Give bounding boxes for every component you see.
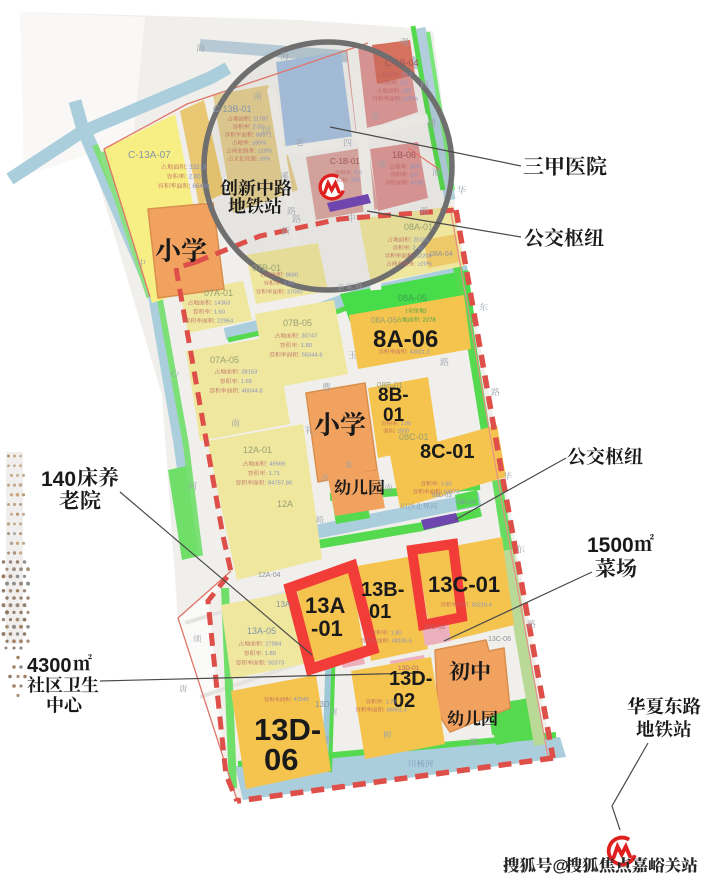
- svg-text:C-13B-01: C-13B-01: [213, 104, 252, 114]
- svg-text:1.71: 1.71: [269, 471, 280, 477]
- svg-text:08A-06: 08A-06: [371, 316, 397, 325]
- svg-text:11787: 11787: [253, 116, 268, 122]
- svg-text:48105.6: 48105.6: [392, 638, 412, 644]
- svg-text:01: 01: [369, 601, 391, 623]
- svg-text:≥5%: ≥5%: [259, 156, 270, 162]
- svg-text:13C-01: 13C-01: [428, 572, 500, 597]
- svg-text:13B-: 13B-: [361, 579, 404, 601]
- svg-text:4.0: 4.0: [354, 170, 362, 176]
- svg-text:08B-01: 08B-01: [377, 381, 403, 390]
- svg-text:50373: 50373: [268, 661, 284, 667]
- svg-text:30747: 30747: [301, 334, 317, 340]
- svg-text::: :: [397, 421, 399, 427]
- svg-text:2.00: 2.00: [189, 173, 202, 180]
- svg-text:13C-06: 13C-06: [488, 636, 511, 643]
- svg-text:1500: 1500: [587, 534, 634, 557]
- svg-text:13D: 13D: [315, 700, 330, 709]
- svg-text:≥10%: ≥10%: [258, 148, 272, 154]
- svg-text:13A-05: 13A-05: [247, 626, 276, 636]
- svg-text:1.80: 1.80: [391, 630, 402, 636]
- svg-text:1B-06: 1B-06: [392, 150, 416, 160]
- svg-text:43021.2: 43021.2: [410, 349, 430, 355]
- svg-text:22.5: 22.5: [401, 72, 412, 78]
- svg-text:≥20%: ≥20%: [418, 261, 432, 267]
- svg-text:12A: 12A: [277, 499, 293, 509]
- svg-text:41540: 41540: [294, 697, 309, 703]
- svg-text:C-1B-01: C-1B-01: [330, 157, 360, 166]
- svg-text:46044.8: 46044.8: [242, 389, 263, 395]
- svg-text::: :: [394, 429, 396, 435]
- svg-text:1.80: 1.80: [301, 343, 312, 349]
- svg-text:66438: 66438: [192, 183, 210, 190]
- svg-text:320: 320: [351, 178, 360, 184]
- svg-text:C-1B-04: C-1B-04: [385, 58, 419, 68]
- svg-text:25101: 25101: [413, 237, 429, 243]
- svg-text:≤80%: ≤80%: [252, 140, 266, 146]
- svg-text:1.78: 1.78: [386, 699, 397, 705]
- svg-text:07B-01: 07B-01: [252, 263, 281, 273]
- svg-text::: :: [189, 183, 191, 190]
- svg-text:8C-01: 8C-01: [420, 441, 474, 463]
- svg-text:37060: 37060: [287, 289, 303, 295]
- svg-text:@: @: [553, 857, 569, 875]
- svg-text:12A-04: 12A-04: [258, 572, 281, 579]
- svg-text:14363: 14363: [214, 301, 230, 307]
- svg-text:08A-01: 08A-01: [404, 222, 433, 232]
- svg-text:1500: 1500: [397, 429, 409, 435]
- svg-text:2.40: 2.40: [413, 245, 424, 251]
- svg-text:84757.86: 84757.86: [268, 481, 292, 487]
- svg-text:28153: 28153: [241, 370, 257, 376]
- svg-text::: :: [185, 173, 187, 180]
- svg-text:06: 06: [264, 742, 298, 777]
- svg-text:07B-05: 07B-05: [283, 318, 312, 328]
- svg-text:22964: 22964: [217, 319, 234, 325]
- svg-text:08A-05: 08A-05: [398, 293, 427, 303]
- svg-text:13D-01: 13D-01: [398, 665, 420, 672]
- svg-text:32208: 32208: [416, 253, 432, 259]
- svg-text:07A-05: 07A-05: [210, 355, 239, 365]
- svg-text:): ): [425, 309, 427, 315]
- svg-text:33219: 33219: [189, 164, 207, 171]
- svg-text::: :: [291, 697, 293, 703]
- svg-text:C-13A-07: C-13A-07: [128, 150, 171, 161]
- svg-text:≥25%: ≥25%: [404, 96, 418, 102]
- svg-text:07A-01: 07A-01: [204, 288, 233, 298]
- svg-text:2.5: 2.5: [400, 80, 408, 86]
- svg-text:27984: 27984: [265, 642, 282, 648]
- svg-text:1.60: 1.60: [214, 310, 225, 316]
- svg-text::: :: [348, 178, 350, 184]
- svg-text::: :: [351, 170, 353, 176]
- svg-text:35%: 35%: [410, 164, 421, 170]
- svg-text:49566: 49566: [269, 462, 285, 468]
- svg-text:4300: 4300: [27, 655, 72, 677]
- svg-text:1.60: 1.60: [441, 481, 452, 487]
- svg-text:1.80: 1.80: [265, 651, 276, 657]
- svg-text:(: (: [406, 309, 408, 315]
- svg-text:155: 155: [402, 88, 411, 94]
- svg-text::: :: [186, 164, 188, 171]
- svg-text:2.00: 2.00: [253, 124, 264, 130]
- svg-text:12A-01: 12A-01: [243, 445, 272, 455]
- svg-text:8660: 8660: [286, 272, 298, 278]
- svg-text:64970: 64970: [444, 489, 460, 495]
- svg-text:2.0: 2.0: [410, 172, 418, 178]
- svg-text:2278: 2278: [423, 318, 436, 324]
- svg-text:13C-02: 13C-02: [424, 624, 446, 631]
- svg-text:1.00: 1.00: [401, 421, 412, 427]
- svg-text:4708: 4708: [411, 180, 423, 186]
- svg-text:140: 140: [41, 468, 76, 491]
- svg-text:55344.6: 55344.6: [302, 353, 323, 359]
- svg-text:50216.4: 50216.4: [472, 602, 492, 608]
- svg-text:08A-04: 08A-04: [430, 251, 453, 258]
- svg-text:1.65: 1.65: [241, 379, 252, 385]
- svg-text:08D-04: 08D-04: [456, 500, 476, 506]
- svg-text:-01: -01: [311, 616, 343, 641]
- svg-text:13A: 13A: [305, 593, 345, 618]
- svg-text:13A: 13A: [276, 600, 291, 609]
- svg-text:66901.4: 66901.4: [387, 707, 407, 713]
- svg-text:2.00: 2.00: [284, 281, 295, 287]
